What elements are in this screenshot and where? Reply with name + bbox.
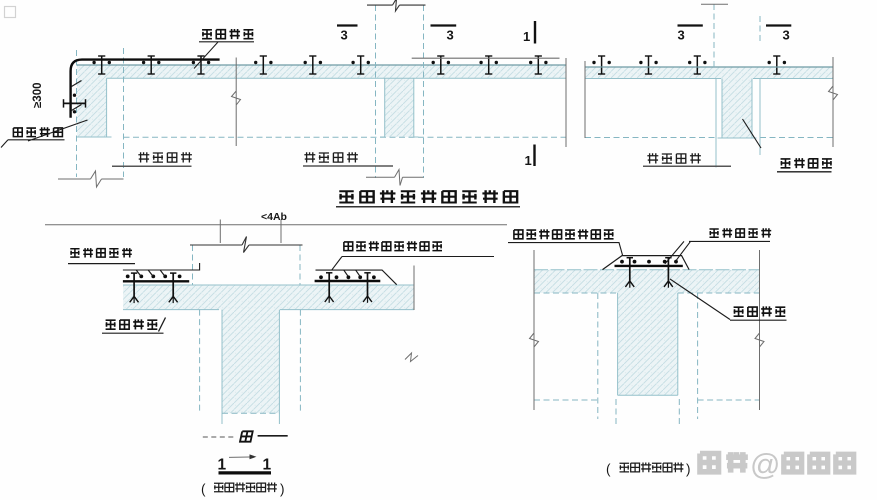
svg-text:3: 3 xyxy=(447,28,454,43)
svg-text:1: 1 xyxy=(218,457,227,474)
svg-text:1: 1 xyxy=(525,153,532,168)
svg-text:≥300: ≥300 xyxy=(32,83,44,109)
svg-text:): ) xyxy=(280,482,285,497)
svg-text:3: 3 xyxy=(678,28,685,43)
svg-text:3: 3 xyxy=(783,28,790,43)
svg-text:<4Ab: <4Ab xyxy=(261,211,287,223)
svg-text:@: @ xyxy=(750,449,780,482)
svg-text:(: ( xyxy=(201,482,206,497)
svg-text:1: 1 xyxy=(263,457,272,474)
svg-text:(: ( xyxy=(606,462,611,477)
svg-text:1: 1 xyxy=(523,29,530,44)
svg-text:3: 3 xyxy=(341,28,348,43)
svg-text:): ) xyxy=(686,462,691,477)
